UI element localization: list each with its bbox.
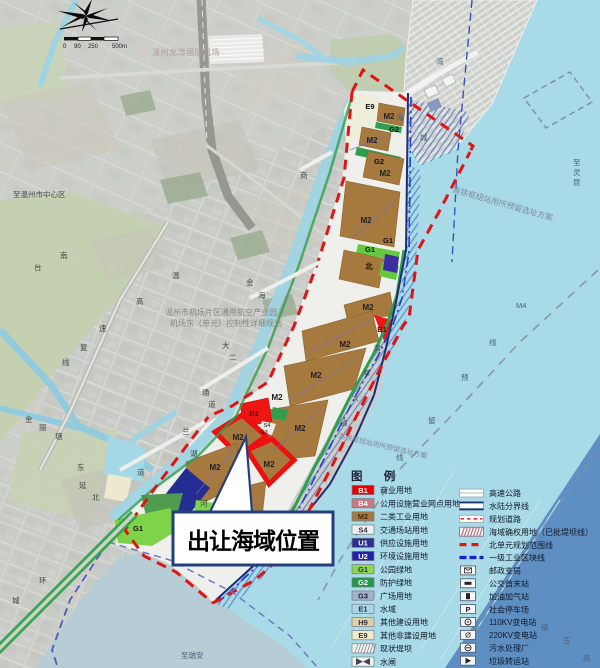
svg-text:二: 二 (229, 353, 237, 362)
svg-text:北: 北 (92, 493, 100, 502)
svg-text:图 例: 图 例 (351, 469, 404, 483)
svg-text:台: 台 (34, 262, 42, 272)
svg-text:供应设施用地: 供应设施用地 (380, 538, 428, 548)
svg-text:温: 温 (172, 271, 180, 280)
svg-text:M2: M2 (383, 112, 395, 121)
svg-text:Ø: Ø (465, 631, 471, 640)
svg-text:通: 通 (202, 387, 210, 397)
svg-text:邮政支局: 邮政支局 (489, 566, 521, 576)
svg-text:规划道路: 规划道路 (489, 514, 521, 524)
svg-text:出让海域位置: 出让海域位置 (187, 528, 320, 554)
svg-text:G2: G2 (358, 578, 368, 587)
svg-text:延: 延 (79, 480, 87, 490)
svg-text:高: 高 (136, 296, 144, 306)
svg-text:公交首末站: 公交首末站 (489, 579, 529, 589)
svg-text:机场东（单元）控制性详细规划: 机场东（单元）控制性详细规划 (170, 318, 282, 328)
svg-text:G1: G1 (383, 236, 393, 245)
svg-text:M2: M2 (263, 460, 275, 469)
svg-text:南: 南 (60, 250, 68, 260)
svg-text:M2: M2 (366, 136, 378, 145)
svg-text:现状堤坝: 现状堤坝 (380, 644, 412, 654)
svg-text:E9: E9 (365, 102, 374, 111)
svg-text:大: 大 (352, 393, 359, 402)
svg-text:M2: M2 (209, 463, 221, 472)
svg-text:220KV变电站: 220KV变电站 (489, 630, 537, 640)
svg-text:500m: 500m (112, 44, 127, 50)
svg-text:留: 留 (428, 415, 436, 425)
svg-text:H9: H9 (358, 618, 368, 627)
svg-text:至瑞安: 至瑞安 (181, 650, 204, 660)
svg-text:90: 90 (74, 44, 81, 50)
svg-text:二类工业用地: 二类工业用地 (380, 512, 428, 522)
svg-text:至: 至 (573, 158, 581, 167)
svg-text:滨: 滨 (374, 343, 381, 352)
svg-text:B1: B1 (377, 325, 387, 334)
svg-text:金: 金 (25, 414, 33, 424)
svg-text:温州市机场片区通用航空产业园: 温州市机场片区通用航空产业园 (165, 307, 277, 317)
svg-text:大: 大 (222, 340, 230, 350)
svg-text:M2: M2 (360, 216, 372, 225)
svg-text:北: 北 (365, 261, 373, 271)
svg-text:G1: G1 (365, 245, 375, 254)
svg-text:M2: M2 (339, 340, 351, 349)
svg-text:垃圾转运站: 垃圾转运站 (489, 656, 529, 666)
svg-text:广场用地: 广场用地 (380, 591, 412, 601)
svg-text:250: 250 (88, 44, 99, 50)
svg-text:灵: 灵 (573, 168, 581, 177)
svg-text:商业用地: 商业用地 (380, 485, 412, 495)
svg-text:湾: 湾 (436, 56, 444, 66)
svg-text:U2: U2 (358, 552, 368, 561)
svg-text:速: 速 (99, 324, 107, 333)
svg-text:海: 海 (363, 368, 370, 377)
svg-text:M2: M2 (310, 371, 322, 380)
svg-text:U1: U1 (358, 539, 368, 548)
svg-text:道: 道 (208, 399, 216, 409)
svg-text:加油加气站: 加油加气站 (489, 591, 529, 601)
svg-text:至温州市中心区: 至温州市中心区 (13, 189, 66, 199)
svg-text:S4: S4 (358, 525, 368, 534)
svg-text:道: 道 (341, 418, 348, 427)
svg-text:水闸: 水闸 (380, 657, 396, 667)
svg-text:海域确权用地（已批堤坝线）: 海域确权用地（已批堤坝线） (489, 527, 593, 537)
svg-text:复: 复 (80, 342, 88, 352)
svg-text:道: 道 (137, 467, 145, 477)
svg-text:M2: M2 (358, 512, 368, 521)
svg-text:P: P (465, 605, 470, 614)
svg-text:G3: G3 (358, 591, 368, 600)
svg-text:环: 环 (39, 576, 47, 585)
svg-text:公用设施营业网点用地: 公用设施营业网点用地 (380, 498, 460, 508)
svg-text:一级工业区块线: 一级工业区块线 (489, 553, 545, 563)
svg-text:B1: B1 (358, 486, 368, 495)
svg-text:其他建设用地: 其他建设用地 (380, 617, 428, 627)
svg-text:污水处理厂: 污水处理厂 (489, 643, 529, 653)
svg-text:G3: G3 (260, 430, 267, 436)
svg-text:海: 海 (258, 290, 266, 300)
svg-text:M4: M4 (516, 301, 526, 310)
svg-text:商: 商 (300, 170, 308, 180)
svg-text:B1: B1 (249, 409, 259, 418)
svg-text:丽: 丽 (39, 423, 47, 432)
svg-text:城: 城 (12, 596, 20, 605)
svg-text:高速公路: 高速公路 (489, 488, 521, 498)
svg-text:交通场站用地: 交通场站用地 (380, 525, 428, 535)
svg-text:镇: 镇 (541, 622, 549, 632)
svg-text:G2: G2 (389, 125, 399, 134)
svg-text:兰: 兰 (182, 426, 190, 436)
svg-text:M2: M2 (379, 169, 391, 178)
svg-text:G1: G1 (358, 565, 368, 574)
svg-text:预: 预 (461, 372, 469, 382)
svg-text:B4: B4 (358, 499, 368, 508)
svg-text:金: 金 (246, 277, 254, 287)
svg-text:M2: M2 (271, 393, 283, 402)
svg-text:E9: E9 (358, 631, 367, 640)
svg-text:昆: 昆 (573, 178, 581, 187)
svg-text:G2: G2 (374, 157, 384, 166)
svg-text:110KV变电站: 110KV变电站 (489, 617, 536, 627)
svg-text:G1: G1 (133, 524, 143, 533)
svg-text:公园绿地: 公园绿地 (380, 564, 412, 574)
svg-text:E1: E1 (358, 605, 367, 614)
svg-text:温州龙湾国际机场: 温州龙湾国际机场 (152, 47, 220, 57)
svg-text:水域: 水域 (380, 604, 396, 614)
svg-text:线: 线 (396, 452, 404, 462)
svg-text:北单元规划范围线: 北单元规划范围线 (489, 540, 553, 550)
svg-text:河: 河 (200, 499, 208, 508)
svg-text:社会停车场: 社会停车场 (489, 604, 529, 614)
svg-text:瑭: 瑭 (55, 431, 63, 441)
svg-text:M2: M2 (294, 424, 306, 433)
svg-text:线: 线 (489, 337, 497, 347)
svg-text:海: 海 (396, 112, 404, 122)
svg-text:防护绿地: 防护绿地 (380, 578, 412, 588)
svg-text:水陆分界线: 水陆分界线 (489, 501, 529, 511)
svg-text:线: 线 (62, 357, 70, 367)
svg-text:M2: M2 (362, 303, 374, 312)
svg-text:高: 高 (583, 653, 591, 663)
svg-text:M2: M2 (232, 433, 244, 442)
svg-text:玉: 玉 (563, 636, 571, 645)
svg-text:其他非建设用地: 其他非建设用地 (380, 630, 436, 640)
svg-text:环境设施用地: 环境设施用地 (380, 551, 428, 561)
svg-text:东: 东 (77, 462, 85, 472)
svg-text:S4: S4 (264, 423, 271, 429)
svg-text:湖: 湖 (190, 449, 198, 458)
svg-text:城: 城 (420, 133, 428, 142)
